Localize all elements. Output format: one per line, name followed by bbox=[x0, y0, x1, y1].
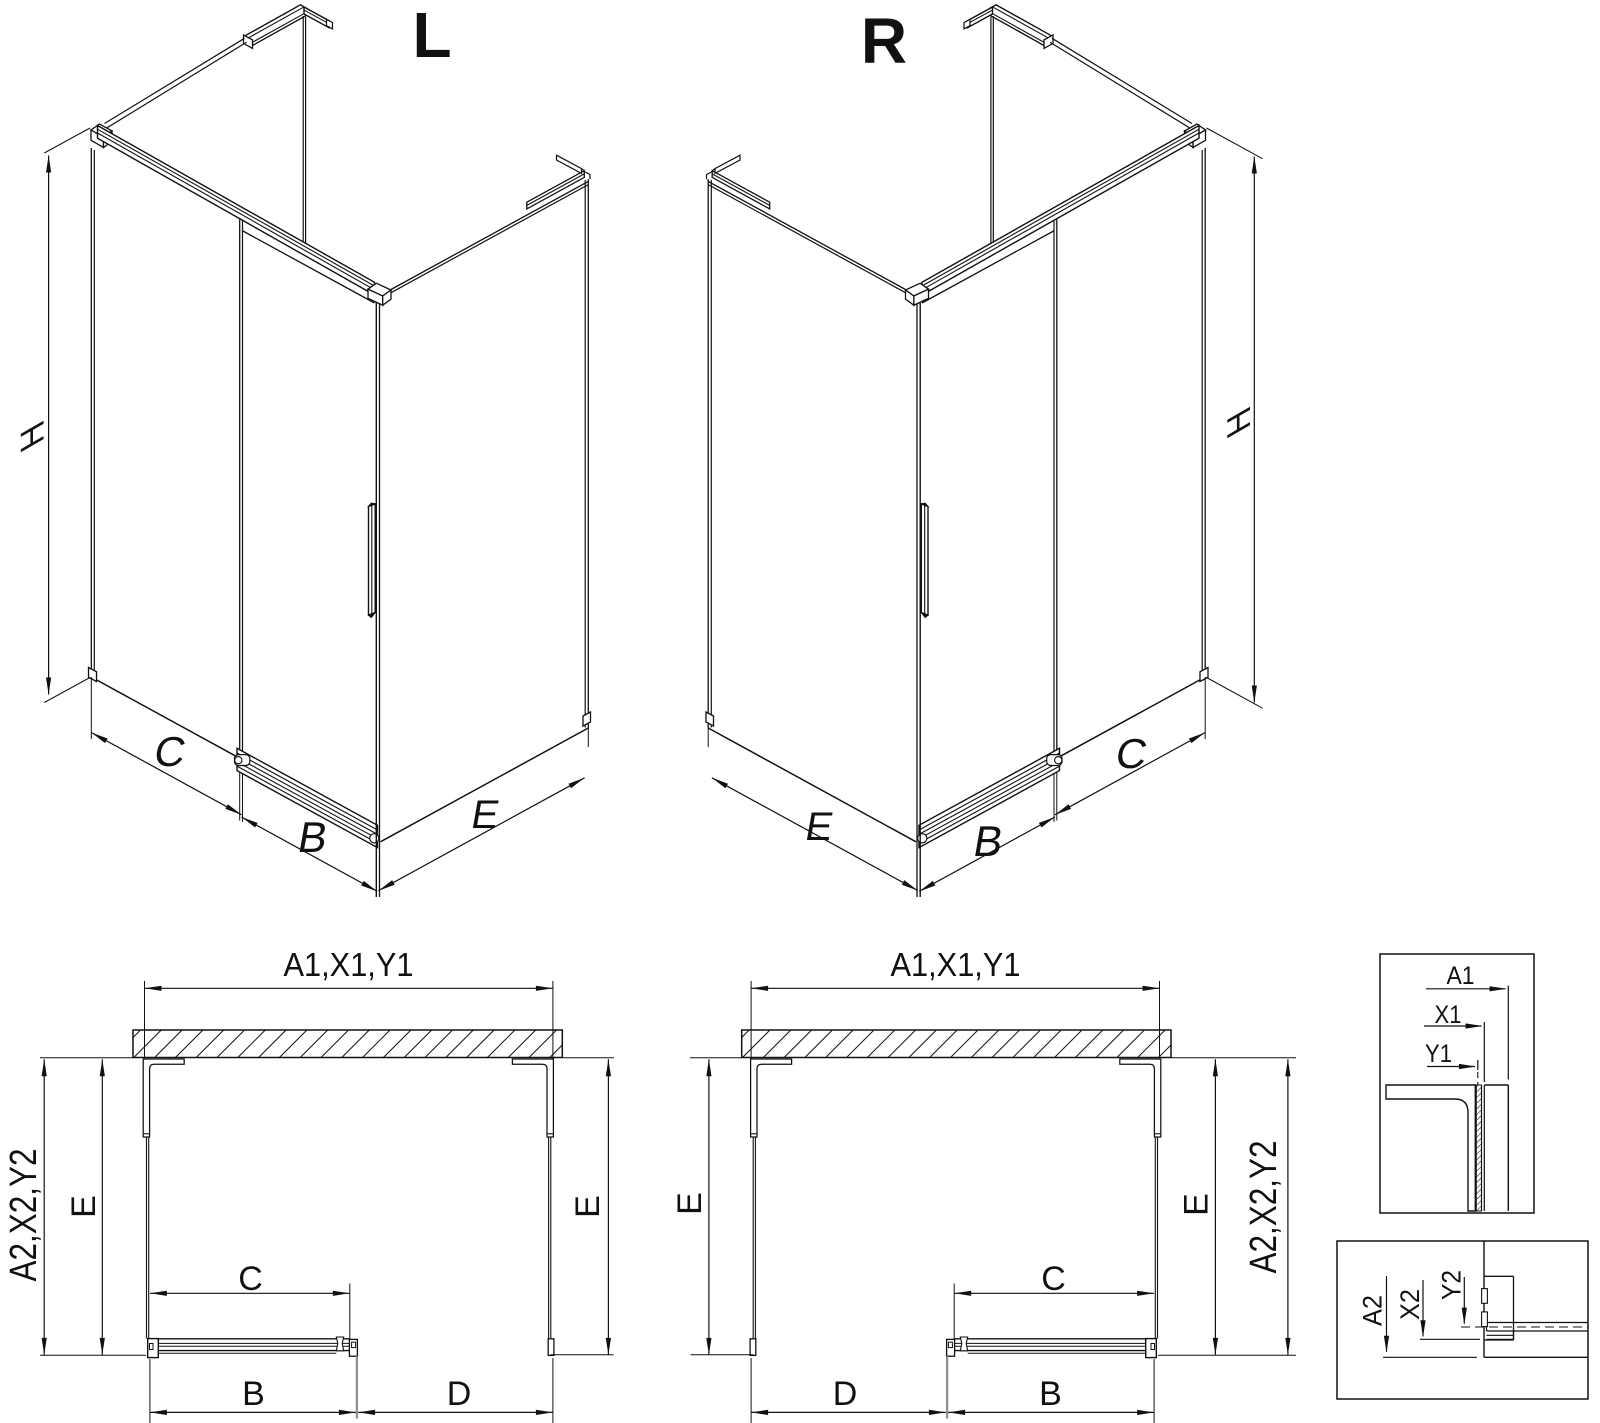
svg-text:B: B bbox=[1039, 1375, 1062, 1413]
svg-text:A2,X2,Y2: A2,X2,Y2 bbox=[1243, 1141, 1285, 1274]
svg-text:E: E bbox=[1178, 1193, 1216, 1216]
svg-text:A1,X1,Y1: A1,X1,Y1 bbox=[284, 946, 414, 983]
svg-text:X2: X2 bbox=[1395, 1289, 1425, 1320]
svg-text:Y2: Y2 bbox=[1437, 1270, 1467, 1300]
svg-text:D: D bbox=[447, 1375, 472, 1413]
svg-text:A2,X2,Y2: A2,X2,Y2 bbox=[3, 1149, 45, 1282]
svg-text:B: B bbox=[242, 1375, 265, 1413]
svg-text:Y1: Y1 bbox=[1425, 1040, 1452, 1068]
svg-text:X1: X1 bbox=[1435, 1001, 1462, 1029]
svg-text:D: D bbox=[833, 1375, 858, 1413]
svg-text:E: E bbox=[671, 1192, 709, 1215]
svg-text:A1: A1 bbox=[1447, 962, 1475, 990]
svg-text:L: L bbox=[412, 0, 451, 71]
svg-text:R: R bbox=[861, 5, 907, 77]
svg-text:C: C bbox=[1041, 1260, 1066, 1298]
svg-text:E: E bbox=[65, 1195, 103, 1218]
svg-text:E: E bbox=[569, 1195, 607, 1218]
svg-text:C: C bbox=[238, 1260, 263, 1298]
svg-text:A2: A2 bbox=[1358, 1295, 1388, 1326]
svg-text:A1,X1,Y1: A1,X1,Y1 bbox=[891, 946, 1021, 983]
